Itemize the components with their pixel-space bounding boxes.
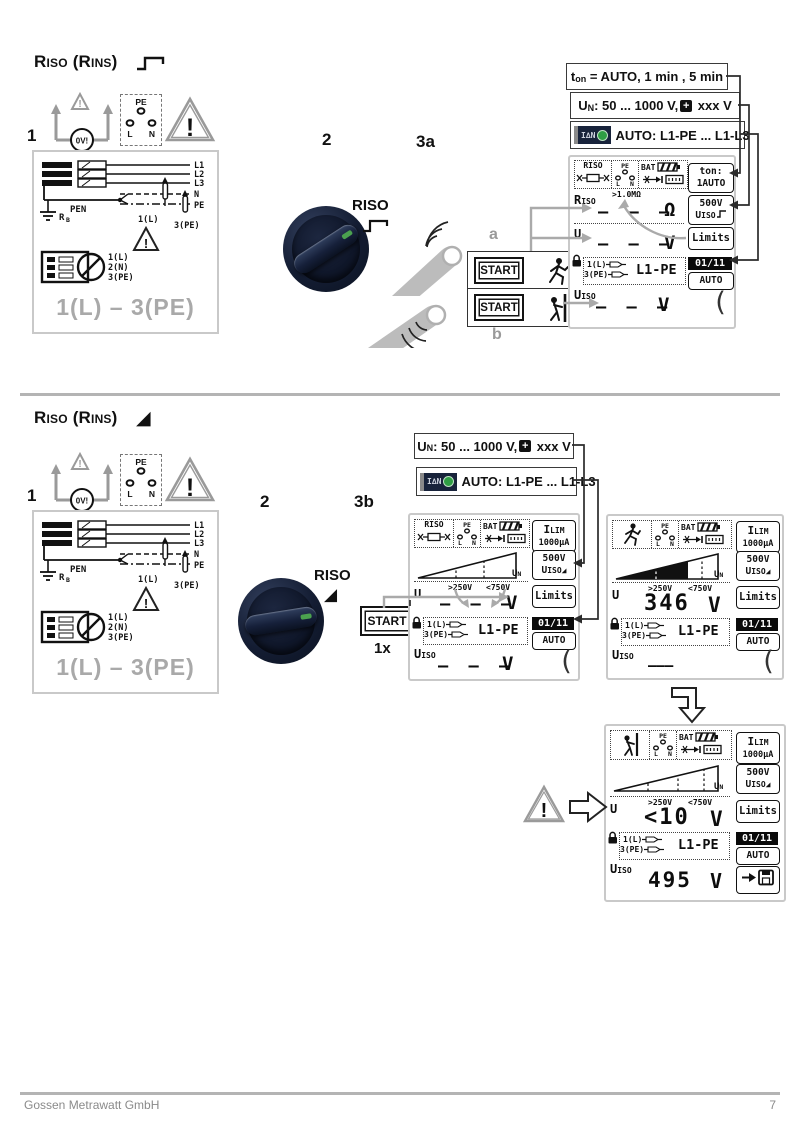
plug-fuse-icons xyxy=(641,174,685,185)
option-b-label: b xyxy=(492,326,502,344)
u-row-label: U xyxy=(574,227,581,241)
uiso-row-label: UISO xyxy=(612,648,634,662)
u-unit: V xyxy=(664,232,675,254)
battery-status-icons: BAT xyxy=(679,521,731,548)
un-ramp-label: UN xyxy=(714,782,723,792)
svg-text:N: N xyxy=(194,550,199,560)
svg-text:PE: PE xyxy=(135,97,147,107)
riso-function-icon: RISO xyxy=(415,520,454,547)
measurement-path: L1-PE xyxy=(678,837,719,853)
un-parameter-box: UN: 50 ... 1000 V,+ xxx V xyxy=(570,92,740,119)
softkey-limits[interactable]: Limits xyxy=(688,227,734,250)
ramp-icon: ◢ xyxy=(766,567,771,576)
lcd-display-running: PELN BAT ILIM1000µA UN 500VUISO◢ >250V <… xyxy=(606,514,784,680)
softkey-limits[interactable]: Limits xyxy=(736,586,780,609)
measurement-caption: 1(L) – 3(PE) xyxy=(34,294,217,321)
measurement-path: L1-PE xyxy=(478,622,519,638)
svg-text:N: N xyxy=(149,489,155,499)
softkey-ilim[interactable]: ILIM1000µA xyxy=(736,521,780,553)
uiso-unit: V xyxy=(710,869,722,893)
threshold-low: >250V xyxy=(448,583,472,592)
bracket-mark: ( xyxy=(712,287,728,318)
svg-text:PE: PE xyxy=(194,201,204,211)
ramp-icon: ◢ xyxy=(324,586,337,603)
riso-function-icon: RISO xyxy=(575,161,612,188)
svg-text:L3: L3 xyxy=(194,179,204,189)
svg-text:L: L xyxy=(127,489,132,499)
auto-sequence-box: I∆N AUTO: L1-PE ... L1-L3 xyxy=(416,467,577,496)
knob-setting-label: RISO xyxy=(352,197,389,214)
svg-text:N: N xyxy=(668,750,672,756)
lcd-display-3a: RISO PE L N BAT ton:1AUTO RISO >1.0MΩ xyxy=(568,155,736,329)
svg-text:L: L xyxy=(654,750,658,756)
finger-press-b-icon xyxy=(368,268,478,348)
lcd-status-bar: RISO PE L N BAT xyxy=(574,160,688,189)
svg-text:N: N xyxy=(149,129,155,139)
probe3-label: 3(PE) xyxy=(622,631,666,640)
battery-icon xyxy=(695,732,719,742)
svg-text:PE: PE xyxy=(135,457,147,467)
svg-text:!: ! xyxy=(78,459,81,470)
u-unit: V xyxy=(708,593,721,617)
svg-text:3(PE): 3(PE) xyxy=(108,633,134,643)
softkey-uiso-voltage[interactable]: 500VUISO◢ xyxy=(736,764,780,794)
lcd-status-bar: RISO PELN BAT xyxy=(414,519,530,548)
socket-status-icon: PE L N xyxy=(612,161,639,188)
u-value: 346 xyxy=(644,591,690,616)
softkey-limits[interactable]: Limits xyxy=(532,585,576,608)
svg-text:PE: PE xyxy=(659,732,667,740)
bracket-mark: ( xyxy=(558,646,574,677)
softkey-uiso-voltage[interactable]: 500VUISO xyxy=(688,195,734,225)
u-value: – – – xyxy=(598,234,674,254)
lcd-display-3b: RISO PELN BAT ILIM1000µA UN 500VUISO◢ >2… xyxy=(408,513,580,681)
softkey-page-indicator[interactable]: 01/11 xyxy=(736,832,778,845)
battery-icon xyxy=(499,521,523,531)
wiring-diagram-1l-3pe: L1 L2 L3 N PE PEN R B 1(L) 3(PE) ! xyxy=(32,150,219,334)
uiso-unit: V xyxy=(502,653,513,675)
probe-icon xyxy=(606,261,626,268)
step-number-1: 1 xyxy=(27,126,36,146)
riso-value: – – – xyxy=(598,202,674,222)
svg-text:R: R xyxy=(59,573,65,583)
plus-voltage-icon: + xyxy=(680,100,692,112)
u-row-label: U xyxy=(612,588,619,602)
save-to-memory-icon xyxy=(741,869,775,886)
softkey-ilim[interactable]: ILIM1000µA xyxy=(532,520,576,552)
svg-text:N: N xyxy=(630,180,634,186)
svg-text:1(L): 1(L) xyxy=(108,253,128,263)
svg-text:3(PE): 3(PE) xyxy=(174,221,200,231)
plug-fuse-icons xyxy=(681,534,725,545)
softkey-page-indicator[interactable]: 01/11 xyxy=(688,257,732,270)
u-row-label: U xyxy=(610,802,617,816)
socket-status-icon: PELN xyxy=(454,520,481,547)
svg-text:N: N xyxy=(194,190,199,200)
probe-icon xyxy=(642,836,662,843)
svg-text:N: N xyxy=(472,539,476,545)
riso-row-label: RISO xyxy=(574,193,596,207)
u-value: <10 xyxy=(644,805,690,830)
svg-text:PEN: PEN xyxy=(70,565,86,575)
svg-text:L: L xyxy=(616,180,620,186)
walking-person-icon xyxy=(613,521,652,548)
warning-triangle-icon: ! xyxy=(164,96,216,144)
battery-status-icons: BAT xyxy=(677,731,731,759)
lock-icon xyxy=(571,254,582,268)
softkey-auto[interactable]: AUTO xyxy=(736,847,780,865)
wiring-diagram-graphic: L1 L2 L3 N PE PEN R B 1(L) 3(PE) ! xyxy=(34,516,213,648)
connection-row: 1(L) 3(PE) L1-PE xyxy=(621,618,730,646)
warning-triangle-icon: ! xyxy=(164,456,216,504)
step-number-2: 2 xyxy=(322,130,331,150)
pulse-icon xyxy=(717,210,727,218)
next-step-arrow-icon xyxy=(570,793,606,821)
svg-text:PE: PE xyxy=(194,561,204,571)
ton-parameter-box: ton = AUTO, 1 min , 5 min xyxy=(566,63,728,90)
svg-text:L: L xyxy=(127,129,132,139)
walking-person-icon xyxy=(544,256,570,286)
idn-auto-icon: I∆N xyxy=(574,126,611,144)
uiso-row-label: UISO xyxy=(574,288,596,302)
svg-text:PEN: PEN xyxy=(70,205,86,215)
ramp-graphic-filled xyxy=(614,551,722,581)
svg-text:!: ! xyxy=(541,800,548,822)
knob-position-mark xyxy=(300,613,312,619)
bracket-mark: ( xyxy=(760,646,776,677)
lock-icon xyxy=(607,831,618,845)
riso-unit: Ω xyxy=(664,199,675,221)
step-number-3a: 3a xyxy=(416,132,435,152)
svg-text:R: R xyxy=(59,213,65,223)
zero-volt-check-icon: ! 0V! xyxy=(46,90,120,154)
svg-text:!: ! xyxy=(78,99,81,110)
measurement-caption: 1(L) – 3(PE) xyxy=(34,654,217,681)
waiting-person-icon xyxy=(544,293,570,323)
step-number-2: 2 xyxy=(260,492,269,512)
row-separator xyxy=(414,581,528,582)
svg-text:1(L): 1(L) xyxy=(108,613,128,623)
row-separator xyxy=(574,223,684,224)
u-unit: V xyxy=(506,592,517,614)
uiso-row-label: UISO xyxy=(414,647,436,661)
lcd-status-bar: PELN BAT xyxy=(612,520,732,549)
un-ramp-label: UN xyxy=(512,569,521,579)
connection-row: 1(L) 3(PE) L1-PE xyxy=(583,257,686,285)
probe-icon xyxy=(446,621,466,628)
socket-icon: PE L N xyxy=(120,94,162,146)
waiting-person-icon xyxy=(611,731,650,759)
plug-fuse-icons xyxy=(483,533,527,544)
softkey-limits[interactable]: Limits xyxy=(736,800,780,823)
start-button[interactable]: START xyxy=(474,294,524,321)
threshold-high: <750V xyxy=(688,798,712,807)
svg-text:B: B xyxy=(66,216,70,224)
svg-text:!: ! xyxy=(144,596,148,611)
softkey-ilim[interactable]: ILIM1000µA xyxy=(736,732,780,764)
pulse-icon xyxy=(136,56,166,71)
u-row-label: U xyxy=(414,587,421,601)
idn-auto-icon: I∆N xyxy=(420,473,457,491)
section-divider xyxy=(20,393,780,396)
footer-page-number: 7 xyxy=(740,1098,776,1112)
svg-text:3(PE): 3(PE) xyxy=(174,581,200,591)
auto-sequence-box: I∆N AUTO: L1-PE ... L1-L3 xyxy=(570,121,745,149)
knob-setting-label: RISO xyxy=(314,567,351,584)
svg-text:PE: PE xyxy=(621,162,629,170)
socket-status-icon: PELN xyxy=(650,731,677,759)
zero-volt-check-icon: ! 0V! xyxy=(46,450,120,514)
un-ramp-label: UN xyxy=(714,570,723,580)
probe-icon xyxy=(608,271,628,278)
connection-row: 1(L) 3(PE) L1-PE xyxy=(423,617,528,645)
probe1-label: 1(L) xyxy=(587,260,626,269)
knob-position-mark xyxy=(341,230,353,240)
step-number-1: 1 xyxy=(27,486,36,506)
probe-icon xyxy=(644,622,664,629)
svg-text:!: ! xyxy=(186,474,194,502)
battery-icon xyxy=(657,162,681,172)
softkey-ton[interactable]: ton:1AUTO xyxy=(688,163,734,193)
probe-icon xyxy=(646,632,666,639)
softkey-page-indicator[interactable]: 01/11 xyxy=(736,618,778,631)
ramp-icon: ◢ xyxy=(136,409,151,428)
uiso-unit: V xyxy=(658,294,669,316)
press-once-label: 1x xyxy=(374,640,391,657)
pulse-icon xyxy=(362,219,390,233)
softkey-page-indicator[interactable]: 01/11 xyxy=(532,617,574,630)
lcd-status-bar: PELN BAT xyxy=(610,730,732,760)
rotary-selector-knob[interactable] xyxy=(283,206,369,292)
probe3-label: 3(PE) xyxy=(620,845,664,854)
ramp-graphic xyxy=(416,550,520,580)
svg-text:PE: PE xyxy=(661,522,669,530)
svg-text:2(N): 2(N) xyxy=(108,263,128,273)
svg-text:3(PE): 3(PE) xyxy=(108,273,134,283)
probe3-label: 3(PE) xyxy=(424,630,468,639)
row-separator xyxy=(612,582,730,583)
rotary-selector-knob[interactable] xyxy=(238,578,324,664)
footer-rule xyxy=(20,1092,780,1095)
wiring-diagram-graphic: L1 L2 L3 N PE PEN R B 1(L) 3(PE) ! xyxy=(34,156,213,288)
svg-text:!: ! xyxy=(186,114,194,142)
svg-text:L: L xyxy=(458,539,462,545)
uiso-value: 495 xyxy=(648,868,692,892)
threshold-high: <750V xyxy=(688,584,712,593)
svg-text:1(L): 1(L) xyxy=(138,215,158,225)
probe1-label: 1(L) xyxy=(623,835,662,844)
warning-triangle-icon: ! xyxy=(522,784,566,824)
probe-icon xyxy=(448,631,468,638)
svg-text:1(L): 1(L) xyxy=(138,575,158,585)
svg-text:PE: PE xyxy=(463,521,471,529)
svg-text:B: B xyxy=(66,576,70,584)
ramp-icon: ◢ xyxy=(562,566,567,575)
green-indicator-icon xyxy=(443,476,454,487)
green-indicator-icon xyxy=(597,130,608,141)
uiso-value: ——— xyxy=(648,658,673,674)
wiring-diagram-1l-3pe: L1 L2 L3 N PE PEN R B 1(L) 3(PE) ! xyxy=(32,510,219,694)
measurement-path: L1-PE xyxy=(678,623,719,639)
section1-title: RISO (RINS) xyxy=(34,52,118,72)
measurement-path: L1-PE xyxy=(636,262,677,278)
start-option-a: START xyxy=(467,251,577,290)
riso-annotation: >1.0MΩ xyxy=(612,190,641,199)
softkey-uiso-voltage[interactable]: 500VUISO◢ xyxy=(736,551,780,581)
start-button[interactable]: START xyxy=(360,606,414,636)
svg-text:L3: L3 xyxy=(194,539,204,549)
softkey-save[interactable] xyxy=(736,866,780,894)
row-separator xyxy=(610,796,730,797)
plus-voltage-icon: + xyxy=(519,440,531,452)
battery-icon xyxy=(697,522,721,532)
svg-text:2(N): 2(N) xyxy=(108,623,128,633)
step-number-3b: 3b xyxy=(354,492,374,512)
repeat-down-arrow-icon xyxy=(672,688,704,722)
svg-text:L: L xyxy=(656,540,660,546)
battery-status-icons: BAT xyxy=(481,520,529,547)
ramp-icon: ◢ xyxy=(766,780,771,789)
footer-company: Gossen Metrawatt GmbH xyxy=(24,1098,159,1112)
section2-title: RISO (RINS) xyxy=(34,408,118,428)
probe-icon xyxy=(644,846,664,853)
manual-page: RISO (RINS) ! 0V! PE L N ! 1 xyxy=(0,0,800,1131)
svg-text:!: ! xyxy=(144,236,148,251)
probe3-label: 3(PE) xyxy=(584,270,628,279)
start-option-b: START xyxy=(467,288,577,327)
probe1-label: 1(L) xyxy=(427,620,466,629)
lcd-display-final: PELN BAT ILIM1000µA UN 500VUISO◢ >250V <… xyxy=(604,724,786,902)
un-parameter-box: UN: 50 ... 1000 V,+ xxx V xyxy=(414,433,574,459)
svg-text:0V!: 0V! xyxy=(76,497,88,506)
battery-status-icons: BAT xyxy=(639,161,687,188)
uiso-row-label: UISO xyxy=(610,862,632,876)
u-value: – – – xyxy=(440,594,516,614)
connection-row: 1(L) 3(PE) L1-PE xyxy=(619,832,730,860)
svg-text:0V!: 0V! xyxy=(76,137,88,146)
start-button[interactable]: START xyxy=(474,257,524,284)
ramp-graphic xyxy=(612,763,722,793)
lock-icon xyxy=(609,617,620,631)
svg-text:N: N xyxy=(670,540,674,546)
option-a-label: a xyxy=(489,226,498,244)
probe1-label: 1(L) xyxy=(625,621,664,630)
lock-icon xyxy=(411,616,422,630)
plug-fuse-icons xyxy=(679,744,723,755)
softkey-uiso-voltage[interactable]: 500VUISO◢ xyxy=(532,550,576,580)
socket-status-icon: PELN xyxy=(652,521,679,548)
u-unit: V xyxy=(710,807,723,831)
socket-icon: PE L N xyxy=(120,454,162,506)
threshold-high: <750V xyxy=(486,583,510,592)
